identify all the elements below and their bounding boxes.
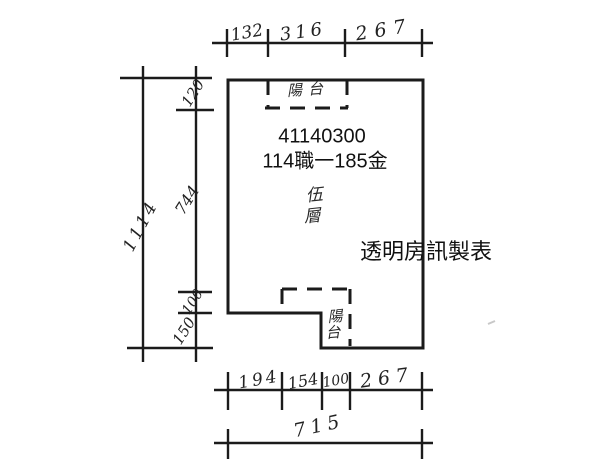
floor-plan-drawing [0, 0, 601, 475]
stray-mark [488, 321, 495, 324]
lot-label: 114職一185金 [262, 145, 387, 174]
balcony-label-char-2: 台 [325, 321, 342, 343]
floor-label-char-2: 層 [302, 201, 322, 228]
floor-plan-canvas: 132 316 267 1114 120 744 100 150 194 154… [0, 0, 601, 475]
floorplan-outline [228, 80, 423, 348]
watermark-text: 透明房訊製表 [360, 234, 492, 266]
canopy-label: 陽台 [286, 77, 329, 101]
